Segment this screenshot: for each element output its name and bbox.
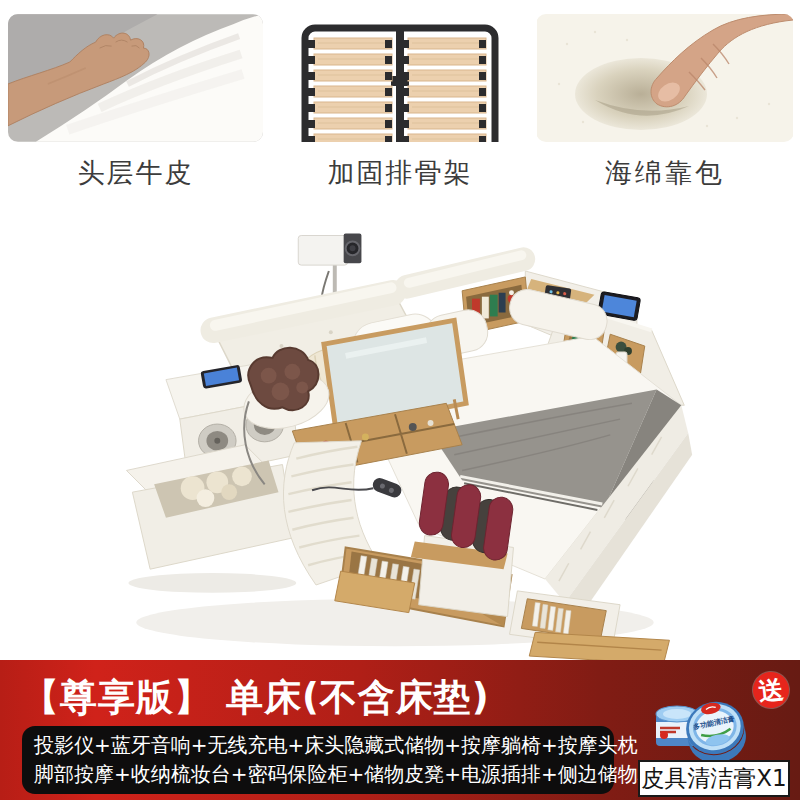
gift-seal: 送 <box>751 670 791 710</box>
gift-tins-photo: 多功能清洁膏 <box>652 688 752 762</box>
drop-door <box>529 632 669 660</box>
leather-cream-tin-front: 多功能清洁膏 <box>681 697 750 762</box>
promo-banner: 【尊享版】 单床(不含床垫) 投影仪+蓝牙音响+无线充电+床头隐藏式储物+按摩躺… <box>0 660 800 800</box>
slat-frame-photo <box>270 14 530 142</box>
feature-list-box: 投影仪+蓝牙音响+无线充电+床头隐藏式储物+按摩躺椅+按摩头枕 脚部按摩+收纳梳… <box>22 726 614 794</box>
feature-card-foam: 海绵靠包 <box>536 14 794 191</box>
gift-caption-box: 皮具清洁膏X1 <box>638 760 790 797</box>
feature-card-slat-frame: 加固排骨架 <box>270 14 530 191</box>
foam-photo <box>536 14 794 142</box>
gift-seal-text: 送 <box>757 672 785 707</box>
feature-card-leather: 头层牛皮 <box>8 14 263 191</box>
slatted-frame-illustration <box>270 14 530 142</box>
leather-photo <box>8 14 263 142</box>
bed-product-photo <box>95 196 695 660</box>
hand-pressing-leather-illustration <box>8 14 263 142</box>
caption-sponge-cushion: 海绵靠包 <box>536 155 794 191</box>
caption-reinforced-slats: 加固排骨架 <box>270 155 530 191</box>
product-title: 【尊享版】 单床(不含床垫) <box>22 673 490 723</box>
caption-top-grain-leather: 头层牛皮 <box>8 155 263 191</box>
feature-list-line1: 投影仪+蓝牙音响+无线充电+床头隐藏式储物+按摩躺椅+按摩头枕 <box>34 731 614 760</box>
thumb-pressing-foam-illustration <box>536 14 794 142</box>
smart-bed-illustration <box>95 196 695 660</box>
gift-caption-text: 皮具清洁膏X1 <box>641 763 786 794</box>
storage-ottoman <box>126 445 296 593</box>
feature-list-line2: 脚部按摩+收纳梳妆台+密码保险柜+储物皮凳+电源插排+侧边储物柜 <box>34 760 614 789</box>
